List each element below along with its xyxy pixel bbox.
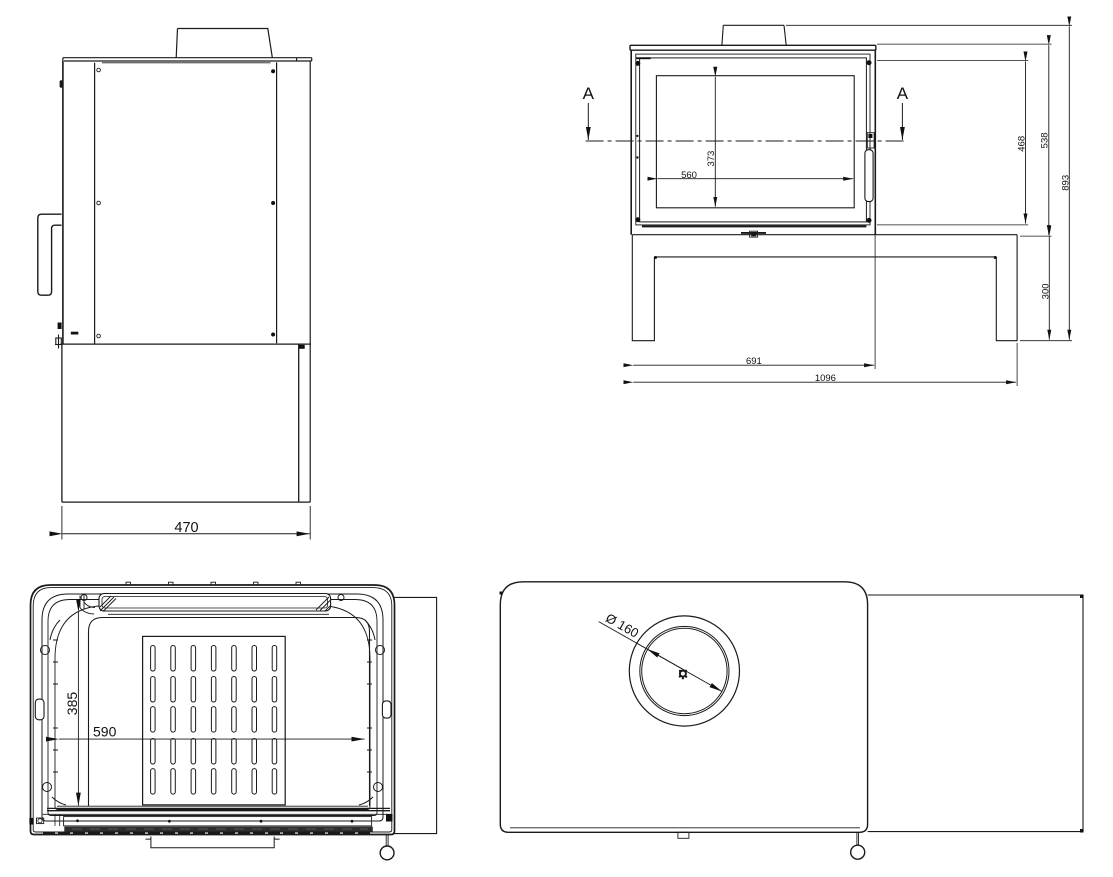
svg-text:1096: 1096	[815, 373, 836, 384]
svg-text:470: 470	[174, 520, 198, 536]
svg-text:893: 893	[1060, 175, 1071, 191]
svg-text:385: 385	[64, 692, 80, 716]
svg-text:373: 373	[706, 151, 717, 167]
svg-text:468: 468	[1017, 136, 1028, 152]
svg-text:300: 300	[1040, 283, 1051, 299]
svg-text:A: A	[897, 84, 909, 103]
svg-text:590: 590	[93, 724, 117, 740]
svg-text:A: A	[583, 84, 595, 103]
svg-text:538: 538	[1040, 132, 1051, 148]
svg-text:560: 560	[681, 170, 697, 181]
svg-text:691: 691	[746, 356, 762, 367]
svg-text:Ø 160: Ø 160	[603, 610, 641, 640]
